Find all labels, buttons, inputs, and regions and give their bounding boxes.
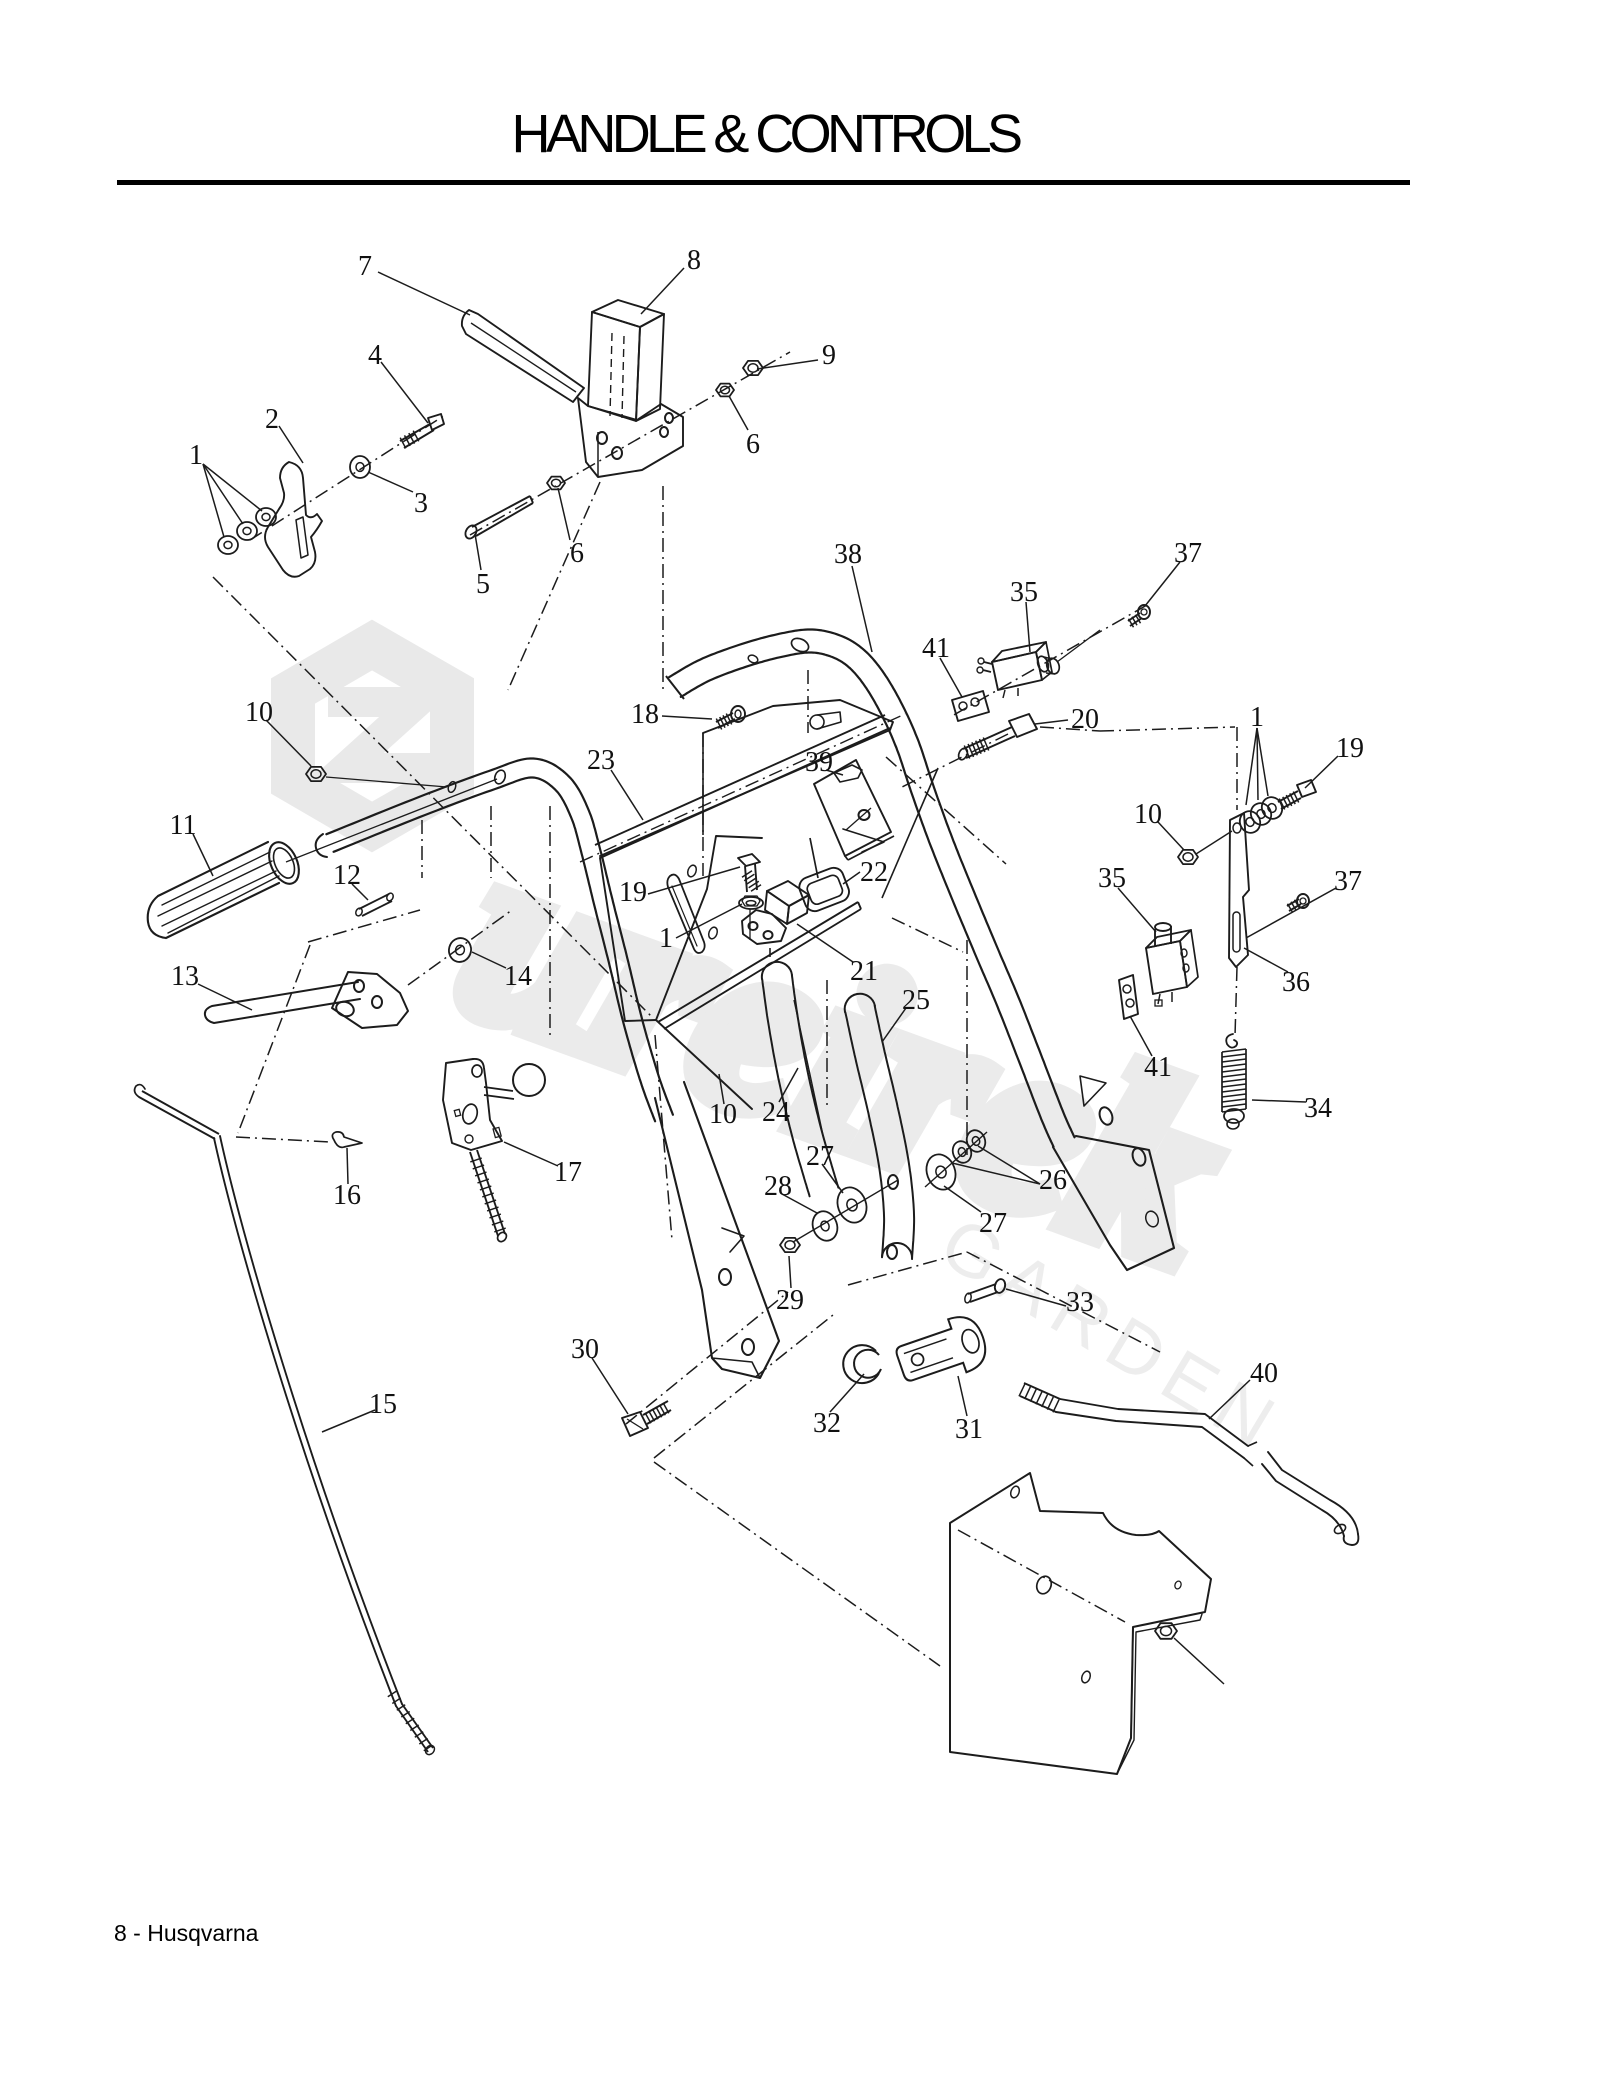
- svg-text:10: 10: [1134, 799, 1162, 830]
- svg-text:1: 1: [189, 440, 203, 471]
- svg-text:17: 17: [554, 1157, 582, 1188]
- svg-text:30: 30: [571, 1334, 599, 1365]
- svg-text:34: 34: [1304, 1093, 1332, 1124]
- svg-text:16: 16: [333, 1180, 361, 1211]
- svg-text:8: 8: [687, 245, 701, 276]
- svg-text:38: 38: [834, 539, 862, 570]
- svg-text:5: 5: [476, 569, 490, 600]
- svg-text:19: 19: [1336, 733, 1364, 764]
- svg-text:27: 27: [979, 1208, 1007, 1239]
- svg-text:21: 21: [850, 956, 878, 987]
- svg-text:25: 25: [902, 985, 930, 1016]
- svg-text:41: 41: [922, 633, 950, 664]
- svg-text:22: 22: [860, 857, 888, 888]
- svg-text:18: 18: [631, 699, 659, 730]
- svg-text:29: 29: [776, 1285, 804, 1316]
- svg-text:9: 9: [822, 340, 836, 371]
- svg-text:39: 39: [805, 747, 833, 778]
- svg-text:37: 37: [1334, 866, 1362, 897]
- svg-text:7: 7: [358, 251, 372, 282]
- svg-text:3: 3: [414, 488, 428, 519]
- svg-text:35: 35: [1010, 577, 1038, 608]
- svg-text:32: 32: [813, 1408, 841, 1439]
- svg-text:2: 2: [265, 404, 279, 435]
- svg-text:13: 13: [171, 961, 199, 992]
- svg-text:27: 27: [806, 1141, 834, 1172]
- svg-text:31: 31: [955, 1414, 983, 1445]
- svg-text:35: 35: [1098, 863, 1126, 894]
- svg-text:6: 6: [746, 429, 760, 460]
- svg-text:1: 1: [1250, 702, 1264, 733]
- svg-text:33: 33: [1066, 1287, 1094, 1318]
- svg-text:10: 10: [709, 1099, 737, 1130]
- svg-text:23: 23: [587, 745, 615, 776]
- svg-text:15: 15: [369, 1389, 397, 1420]
- svg-text:14: 14: [504, 961, 532, 992]
- svg-text:20: 20: [1071, 704, 1099, 735]
- svg-text:41: 41: [1144, 1052, 1172, 1083]
- svg-text:12: 12: [333, 860, 361, 891]
- svg-text:1: 1: [659, 923, 673, 954]
- svg-text:8 - Husqvarna: 8 - Husqvarna: [114, 1920, 259, 1946]
- svg-text:36: 36: [1282, 967, 1310, 998]
- svg-text:6: 6: [570, 538, 584, 569]
- svg-text:4: 4: [368, 340, 382, 371]
- svg-text:HANDLE & CONTROLS: HANDLE & CONTROLS: [512, 104, 1021, 164]
- svg-text:19: 19: [619, 877, 647, 908]
- svg-text:26: 26: [1039, 1165, 1067, 1196]
- svg-text:24: 24: [762, 1097, 790, 1128]
- svg-text:28: 28: [764, 1171, 792, 1202]
- svg-text:10: 10: [245, 697, 273, 728]
- svg-text:11: 11: [170, 810, 197, 841]
- svg-text:40: 40: [1250, 1358, 1278, 1389]
- svg-text:37: 37: [1174, 538, 1202, 569]
